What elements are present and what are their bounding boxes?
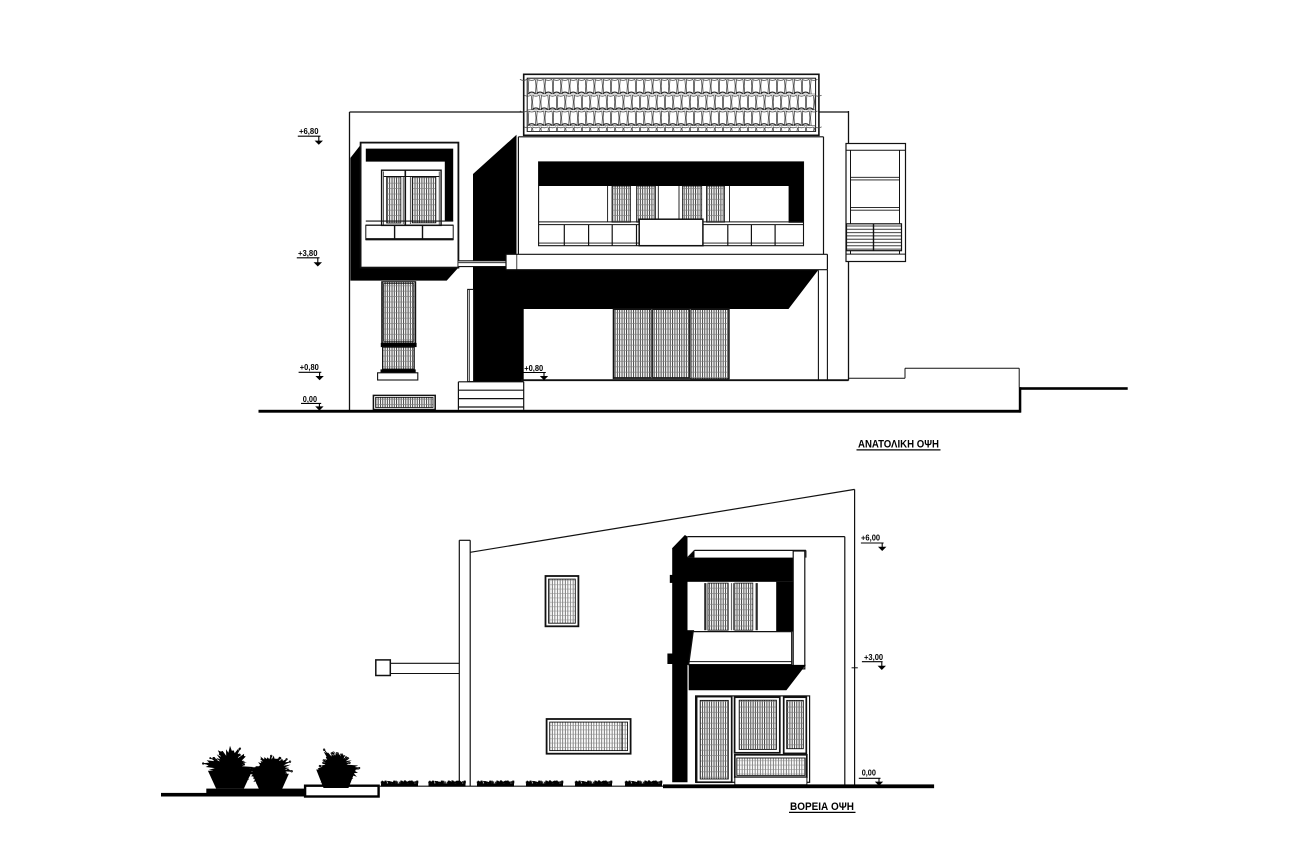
svg-text:ΑΝΑΤΟΛΙΚΗ ΟΨΗ: ΑΝΑΤΟΛΙΚΗ ΟΨΗ <box>858 439 939 451</box>
svg-text:0,00: 0,00 <box>303 394 317 404</box>
svg-text:+6,80: +6,80 <box>299 126 319 136</box>
svg-text:+0,80: +0,80 <box>300 362 319 372</box>
svg-text:+3,00: +3,00 <box>864 652 883 662</box>
svg-text:+0,80: +0,80 <box>524 363 543 373</box>
svg-text:+6,00: +6,00 <box>861 533 880 543</box>
svg-text:0,00: 0,00 <box>862 767 876 777</box>
svg-text:ΒΟΡΕΙΑ ΟΨΗ: ΒΟΡΕΙΑ ΟΨΗ <box>790 801 854 813</box>
svg-text:+3,80: +3,80 <box>298 248 318 258</box>
